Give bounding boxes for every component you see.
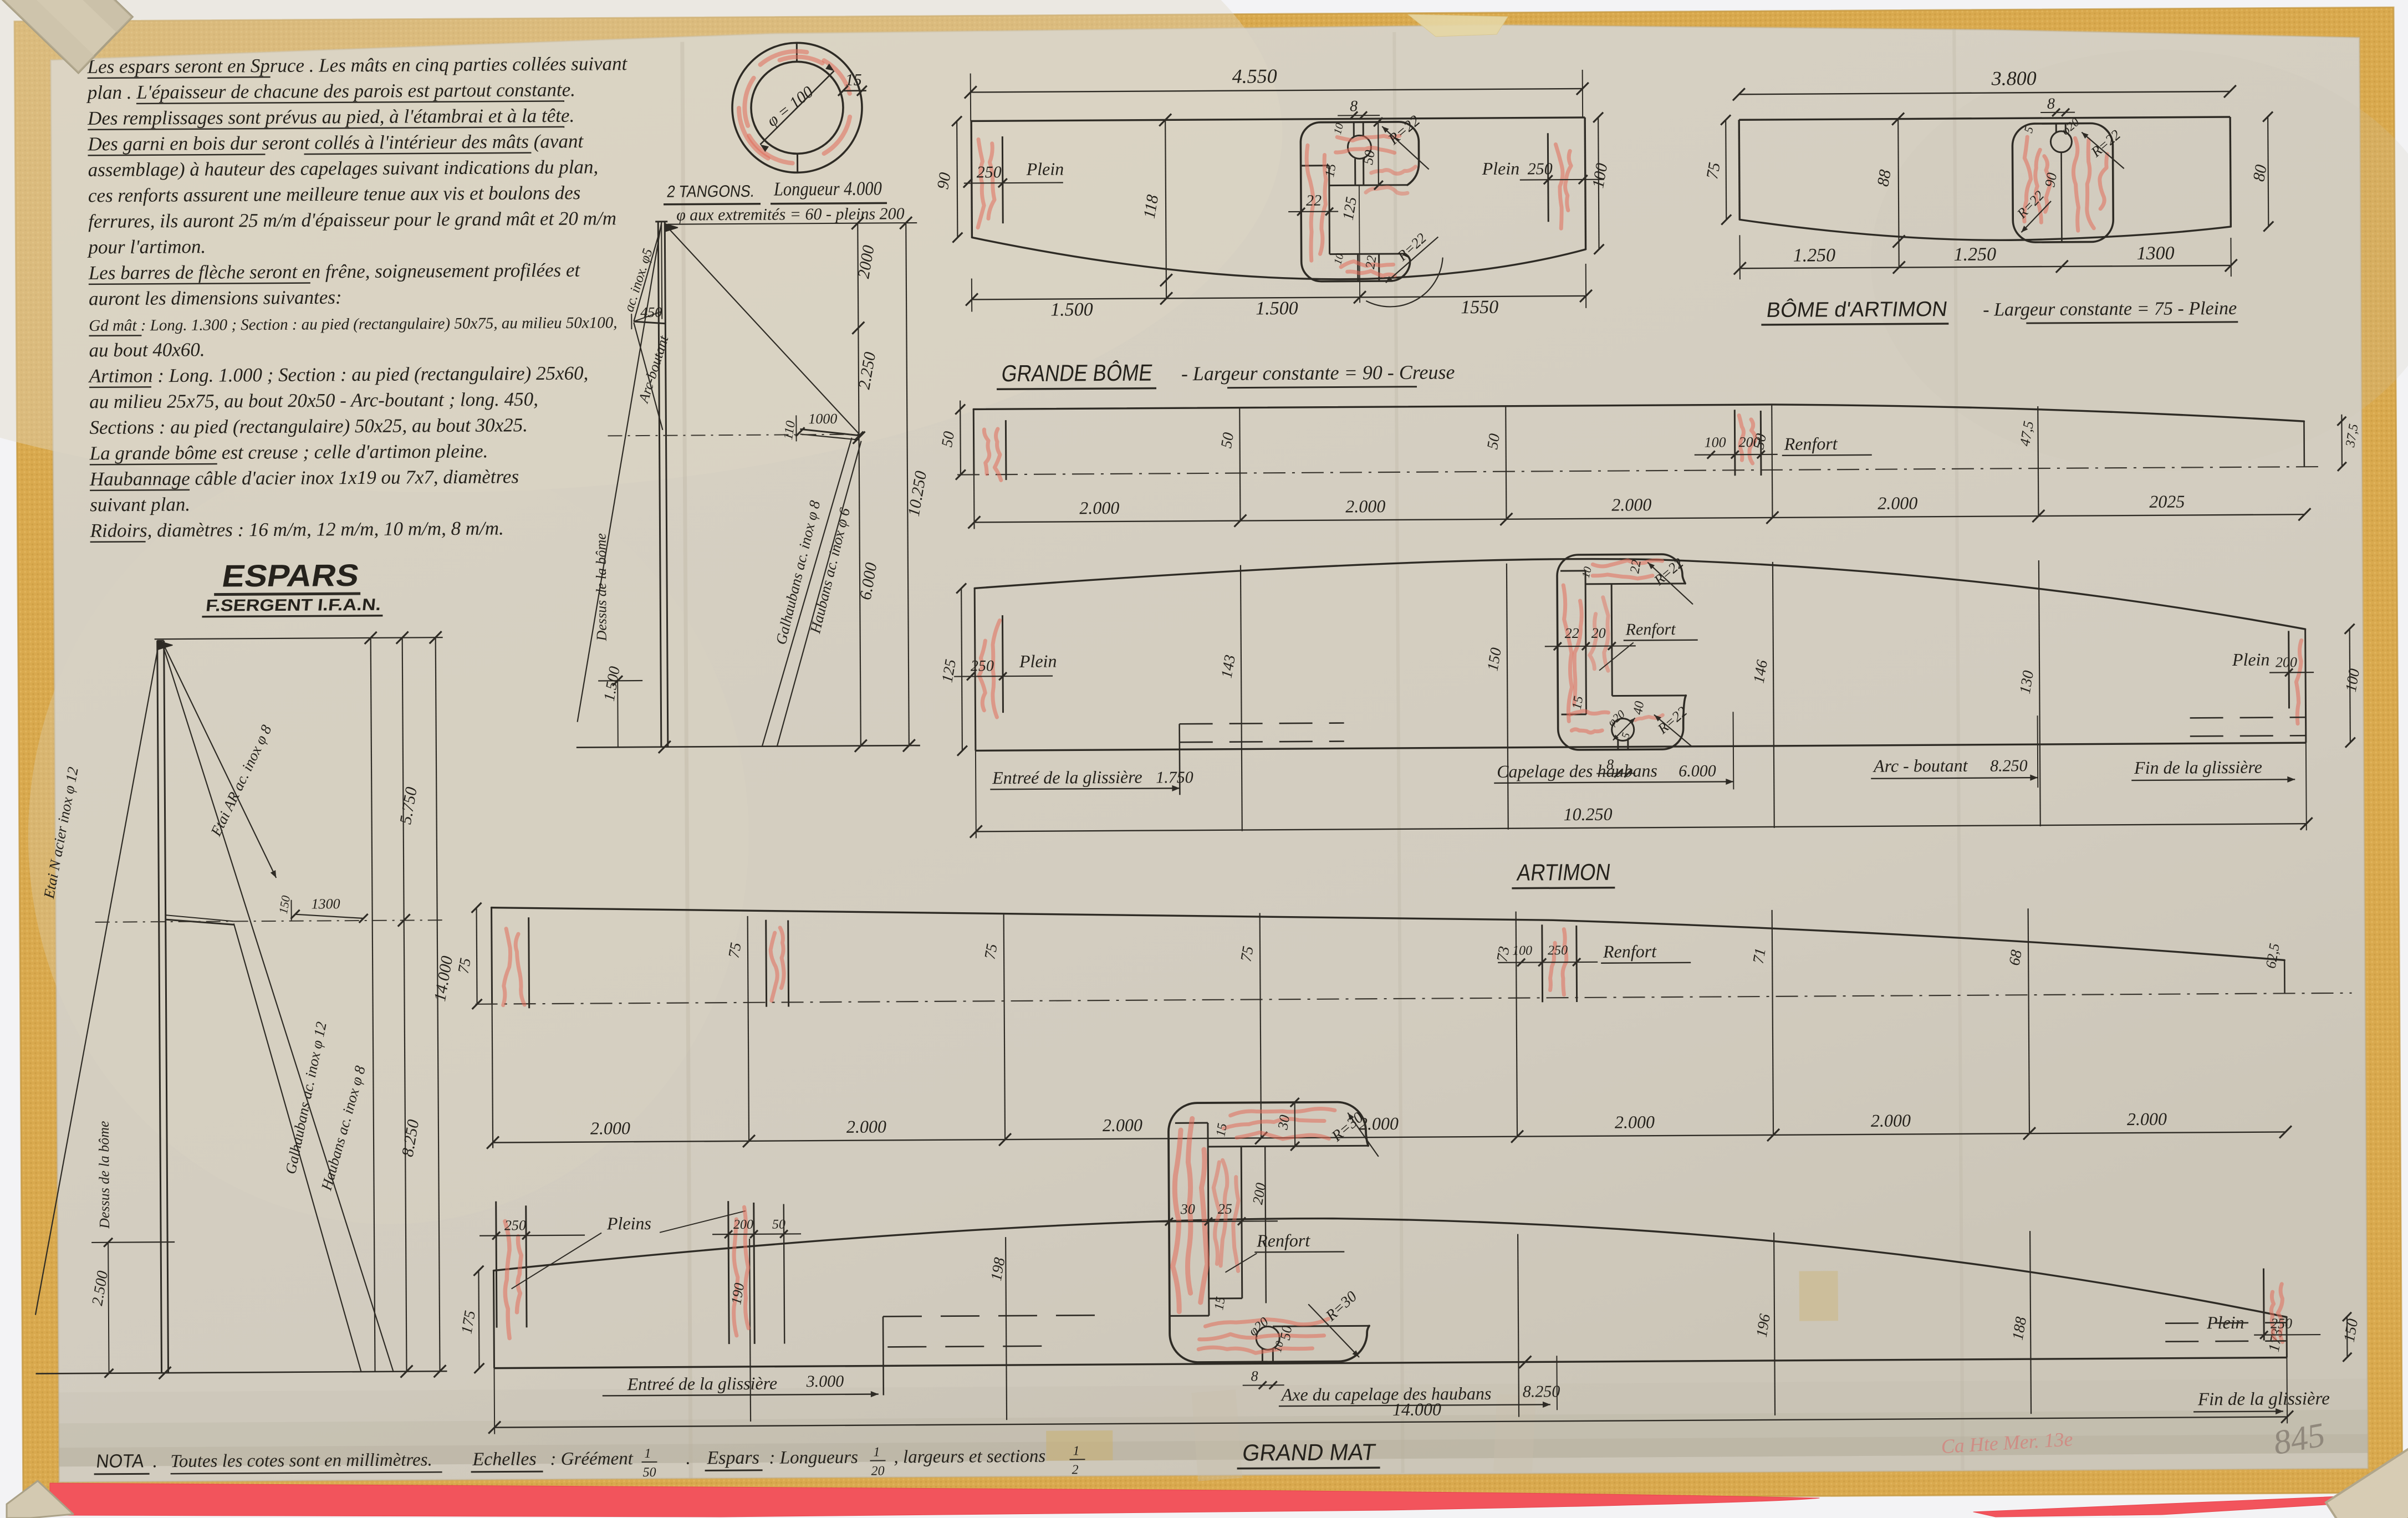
svg-text:Plein: Plein (1026, 159, 1064, 178)
svg-text:15: 15 (1570, 695, 1586, 711)
svg-text:50: 50 (643, 1465, 656, 1480)
svg-text:2: 2 (1072, 1463, 1079, 1477)
svg-text:BÔME d'ARTIMON: BÔME d'ARTIMON (1765, 297, 1949, 322)
svg-text:Longueur 4.000: Longueur 4.000 (773, 177, 882, 200)
svg-text:: Longueurs: : Longueurs (769, 1448, 858, 1468)
svg-text:90: 90 (2042, 171, 2060, 188)
svg-text:auront les dimensions suivante: auront les dimensions suivantes: (89, 287, 342, 310)
svg-text:Pleins: Pleins (606, 1213, 651, 1233)
svg-text:8: 8 (2047, 95, 2055, 113)
svg-text:50: 50 (1484, 432, 1503, 451)
svg-text:2.000: 2.000 (1871, 1110, 1911, 1130)
svg-text:250: 250 (2271, 1315, 2292, 1331)
svg-text:88: 88 (1874, 168, 1895, 188)
svg-text:2025: 2025 (2149, 491, 2185, 511)
svg-text:F.SERGENT I.F.A.N.: F.SERGENT I.F.A.N. (205, 596, 382, 615)
svg-text:450: 450 (640, 304, 662, 320)
svg-text:Plein: Plein (1019, 651, 1057, 671)
svg-text:200: 200 (1739, 434, 1761, 450)
svg-text:15: 15 (845, 71, 862, 89)
svg-text:100: 100 (1512, 943, 1532, 958)
svg-text:250: 250 (1548, 943, 1568, 958)
svg-text:Des garni en bois dur seront c: Des garni en bois dur seront collés à l'… (87, 130, 584, 155)
svg-text:68: 68 (2006, 949, 2026, 967)
svg-text:Renfort: Renfort (1784, 433, 1838, 454)
svg-text:Fin de la glissière: Fin de la glissière (2197, 1389, 2330, 1409)
svg-text:200: 200 (2276, 654, 2297, 670)
svg-text:Ridoirs, diamètres : 16 m/m, 1: Ridoirs, diamètres : 16 m/m, 12 m/m, 10 … (89, 517, 504, 541)
svg-text:: Gréément: : Gréément (550, 1449, 633, 1469)
svg-text:1.500: 1.500 (1256, 298, 1298, 319)
svg-text:2.000: 2.000 (1345, 496, 1385, 516)
svg-text:8: 8 (1251, 1368, 1258, 1384)
svg-text:20: 20 (871, 1464, 885, 1478)
svg-text:2.000: 2.000 (2127, 1109, 2167, 1129)
svg-text:Artimon : Long. 1.000 ; Sectio: Artimon : Long. 1.000 ; Section : au pie… (88, 362, 589, 387)
svg-text:75: 75 (455, 957, 475, 975)
svg-text:15: 15 (1323, 163, 1339, 178)
svg-text:assemblage) à hauteur des cape: assemblage) à hauteur des capelages suiv… (88, 156, 599, 180)
svg-text:80: 80 (2249, 163, 2271, 183)
svg-text:2.000: 2.000 (1611, 494, 1651, 514)
svg-text:8.250: 8.250 (1990, 757, 2028, 775)
svg-text:1: 1 (873, 1445, 880, 1459)
svg-text:Entreé de la glissière: Entreé de la glissière (992, 767, 1142, 788)
svg-text:20: 20 (1591, 625, 1606, 641)
svg-text:au milieu 25x75, au bout 20x50: au milieu 25x75, au bout 20x50 - Arc-bou… (89, 389, 538, 413)
svg-text:73: 73 (1494, 945, 1513, 963)
svg-text:La grande bôme est creuse ; ce: La grande bôme est creuse ; celle d'arti… (89, 440, 488, 464)
svg-text:.: . (686, 1449, 690, 1469)
svg-text:22: 22 (1565, 625, 1579, 641)
svg-text:φ aux extremités = 60 - pleins: φ aux extremités = 60 - pleins 200 (676, 205, 905, 224)
svg-text:25: 25 (1218, 1201, 1232, 1217)
svg-text:1: 1 (644, 1447, 651, 1461)
svg-text:Entreé de la glissière: Entreé de la glissière (627, 1373, 778, 1394)
svg-text:30: 30 (1274, 1114, 1293, 1131)
svg-text:2.000: 2.000 (846, 1116, 886, 1136)
svg-text:3.800: 3.800 (1991, 67, 2037, 89)
svg-text:Sections : au pied (rectangula: Sections : au pied (rectangulaire) 50x25… (89, 414, 528, 438)
svg-text:8.250: 8.250 (1523, 1382, 1560, 1401)
svg-text:100: 100 (1705, 434, 1726, 450)
svg-text:200: 200 (733, 1218, 753, 1232)
svg-text:2 TANGONS.: 2 TANGONS. (666, 182, 756, 201)
svg-text:50: 50 (1360, 149, 1378, 166)
svg-text:30: 30 (1180, 1201, 1195, 1217)
svg-text:Renfort: Renfort (1256, 1230, 1310, 1251)
svg-text:250: 250 (1528, 160, 1553, 178)
svg-text:1300: 1300 (2137, 243, 2175, 264)
svg-text:Dessus de la bôme: Dessus de la bôme (96, 1121, 113, 1229)
svg-text:, largeurs et sections: , largeurs et sections (894, 1447, 1045, 1468)
svg-text:71: 71 (1750, 947, 1769, 965)
svg-text:Plein: Plein (2232, 650, 2270, 669)
svg-text:1.500: 1.500 (1050, 299, 1093, 320)
svg-text:pour l'artimon.: pour l'artimon. (86, 236, 206, 258)
svg-text:Plein: Plein (1482, 159, 1520, 178)
svg-text:1000: 1000 (808, 411, 837, 427)
svg-text:15: 15 (1213, 1122, 1230, 1138)
svg-text:ESPARS: ESPARS (220, 558, 362, 593)
svg-text:Axe du capelage des haubans: Axe du capelage des haubans (1280, 1383, 1492, 1404)
svg-text:1550: 1550 (1461, 297, 1498, 318)
svg-text:2.000: 2.000 (1103, 1115, 1142, 1135)
svg-text:2.000: 2.000 (1079, 498, 1119, 518)
svg-text:50: 50 (1218, 431, 1237, 449)
svg-text:10.250: 10.250 (1563, 804, 1612, 825)
svg-text:Des remplissages sont prévus a: Des remplissages sont prévus au pied, à … (87, 105, 574, 129)
svg-text:3.000: 3.000 (806, 1372, 844, 1391)
svg-text:plan . L'épaisseur de chacune: plan . L'épaisseur de chacune des parois… (86, 79, 575, 103)
svg-text:ferrures, ils auront 25 m/m d': ferrures, ils auront 25 m/m d'épaisseur … (88, 207, 616, 232)
svg-text:.: . (152, 1451, 157, 1471)
svg-text:- Largeur constante = 75 - Ple: - Largeur constante = 75 - Pleine (1983, 298, 2237, 320)
svg-text:1: 1 (1073, 1444, 1079, 1458)
svg-text:6.000: 6.000 (1679, 762, 1716, 780)
svg-text:2.000: 2.000 (1615, 1112, 1655, 1132)
svg-text:90: 90 (933, 171, 955, 191)
svg-text:75: 75 (981, 943, 1001, 961)
svg-text:75: 75 (725, 941, 744, 959)
svg-text:- Largeur constante = 90 - Cre: - Largeur constante = 90 - Creuse (1181, 361, 1455, 385)
svg-text:22: 22 (1628, 559, 1644, 574)
svg-text:Haubannage câble d'acier inox: Haubannage câble d'acier inox 1x19 ou 7x… (89, 466, 519, 490)
svg-text:Gd mât : Long. 1.300 ; Section: Gd mât : Long. 1.300 ; Section : au pied… (89, 314, 617, 335)
svg-text:22: 22 (1363, 254, 1380, 270)
svg-text:250: 250 (977, 163, 1002, 181)
svg-text:Fin de la glissière: Fin de la glissière (2134, 757, 2262, 778)
svg-text:2.000: 2.000 (1878, 493, 1917, 513)
svg-text:Dessus de la bôme: Dessus de la bôme (593, 533, 610, 641)
svg-text:50: 50 (938, 430, 958, 448)
svg-text:Les barres de flèche seront en: Les barres de flèche seront en frêne, so… (88, 259, 581, 284)
svg-text:75: 75 (1703, 161, 1724, 181)
svg-text:GRANDE BÔME: GRANDE BÔME (1000, 360, 1154, 386)
svg-text:Renfort: Renfort (1625, 620, 1676, 639)
svg-text:1.250: 1.250 (1954, 244, 1997, 265)
svg-text:22: 22 (1306, 192, 1322, 209)
svg-text:50: 50 (1277, 1325, 1295, 1341)
svg-text:NOTA: NOTA (95, 1450, 145, 1471)
svg-text:GRAND MAT: GRAND MAT (1241, 1439, 1377, 1465)
svg-text:1.250: 1.250 (1793, 245, 1836, 265)
svg-text:4.550: 4.550 (1232, 65, 1277, 87)
svg-text:au bout 40x60.: au bout 40x60. (89, 339, 205, 361)
svg-text:Capelage des haubans: Capelage des haubans (1497, 760, 1657, 781)
svg-text:ces renforts assurent une meil: ces renforts assurent une meilleure tenu… (88, 182, 581, 206)
svg-text:14.000: 14.000 (1392, 1399, 1441, 1419)
svg-text:ARTIMON: ARTIMON (1516, 859, 1612, 886)
svg-text:250: 250 (504, 1217, 526, 1233)
svg-text:Arc - boutant: Arc - boutant (1873, 755, 1968, 776)
svg-text:Toutes les cotes sont en milli: Toutes les cotes sont en millimètres. (170, 1450, 432, 1471)
svg-text:Espars: Espars (706, 1448, 759, 1469)
svg-text:Renfort: Renfort (1603, 941, 1657, 962)
svg-text:1.750: 1.750 (1156, 768, 1193, 786)
svg-text:Echelles: Echelles (472, 1449, 536, 1470)
svg-text:75: 75 (1238, 945, 1257, 963)
svg-text:40: 40 (1631, 700, 1647, 715)
svg-text:1300: 1300 (311, 896, 340, 912)
svg-text:Les espars seront en Spruce .: Les espars seront en Spruce . Les mâts e… (86, 53, 627, 78)
svg-text:suivant plan.: suivant plan. (90, 493, 190, 515)
svg-text:15: 15 (1212, 1296, 1228, 1311)
svg-text:2.000: 2.000 (590, 1118, 630, 1138)
